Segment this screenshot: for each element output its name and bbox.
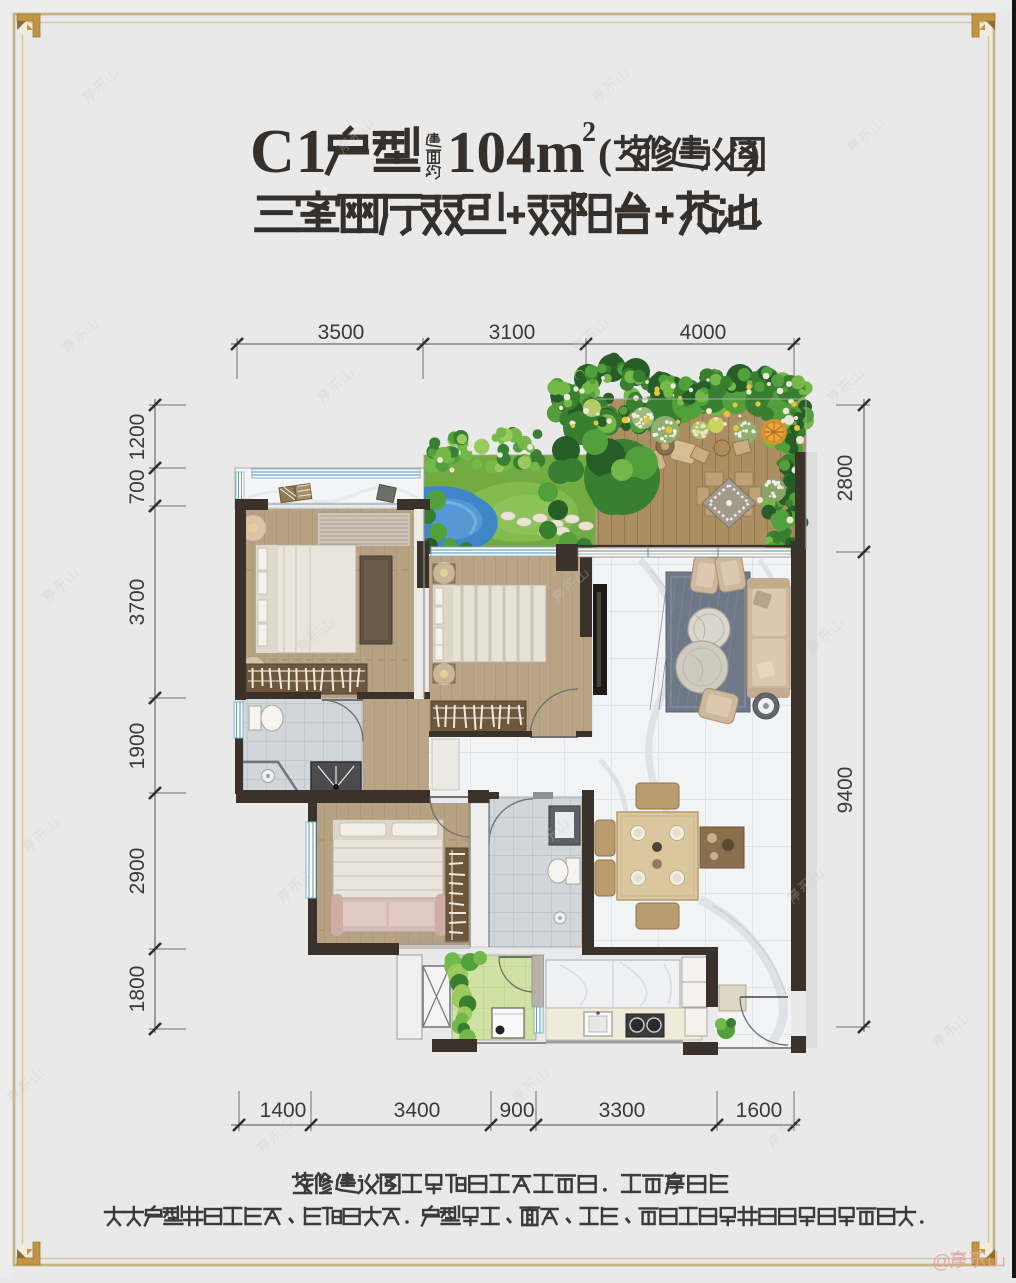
svg-text:1600: 1600 xyxy=(736,1099,783,1122)
svg-text:(: ( xyxy=(598,132,612,178)
svg-text:900: 900 xyxy=(499,1099,534,1122)
svg-text:@: @ xyxy=(932,1252,951,1273)
svg-text:3400: 3400 xyxy=(394,1099,441,1122)
svg-text:2900: 2900 xyxy=(126,848,149,895)
svg-text:104m: 104m xyxy=(447,119,585,185)
svg-text:1200: 1200 xyxy=(126,414,149,461)
svg-text:3300: 3300 xyxy=(599,1099,646,1122)
svg-text:9400: 9400 xyxy=(834,767,857,814)
svg-text:1800: 1800 xyxy=(126,966,149,1013)
svg-text:1900: 1900 xyxy=(126,723,149,770)
svg-text:): ) xyxy=(746,132,760,178)
svg-text:3700: 3700 xyxy=(126,579,149,626)
svg-text:3500: 3500 xyxy=(318,321,365,344)
svg-text:2800: 2800 xyxy=(834,455,857,502)
svg-text:4000: 4000 xyxy=(680,321,727,344)
svg-text:1400: 1400 xyxy=(260,1099,307,1122)
svg-text:700: 700 xyxy=(126,469,149,504)
svg-text:3100: 3100 xyxy=(489,321,536,344)
svg-text:C1: C1 xyxy=(250,118,328,186)
svg-text:2: 2 xyxy=(582,117,596,148)
